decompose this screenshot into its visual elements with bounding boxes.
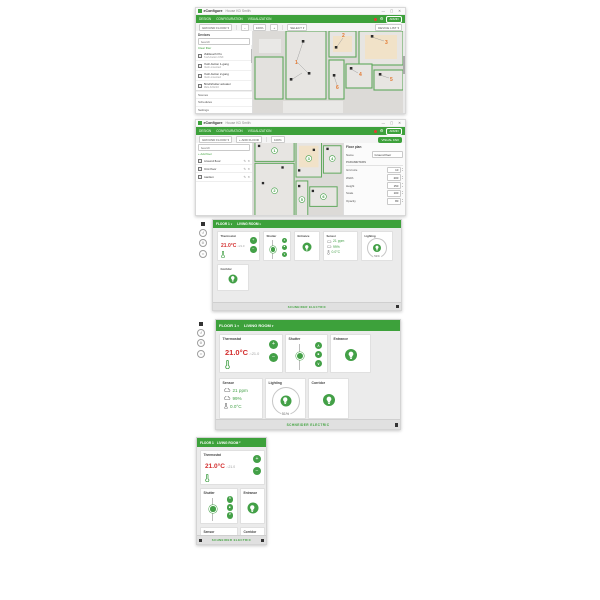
chevron-down-icon: ▾ xyxy=(272,324,274,328)
editor-window-1: eConfigure House KD Smith — ▢ ✕ DESIGN C… xyxy=(195,7,406,114)
svg-text:6: 6 xyxy=(336,85,339,91)
floor-list-item[interactable]: First floor ✎ ✕ xyxy=(196,165,252,173)
shutter-slider[interactable] xyxy=(212,498,213,521)
shutter-widget: Shutter ∧ ■ ∨ xyxy=(285,334,328,373)
slider-knob[interactable] xyxy=(209,505,217,513)
property-label: Scale xyxy=(346,191,387,195)
editor-window-2: eConfigure House KD Smith — ▢ ✕ DESIGN C… xyxy=(195,119,406,216)
temp-down-button[interactable]: − xyxy=(250,246,257,253)
step-down-icon: ▾ xyxy=(402,193,403,195)
settings-gear-icon[interactable]: ⚙ xyxy=(199,239,207,247)
resize-handle-icon[interactable] xyxy=(261,539,264,542)
shutter-stop-button[interactable]: ■ xyxy=(227,504,234,511)
floor-search[interactable] xyxy=(198,144,250,151)
slider-knob[interactable] xyxy=(270,246,277,253)
temp-down-button[interactable]: − xyxy=(269,353,278,362)
notification-dot-icon xyxy=(374,130,377,133)
co2-reading: 21 ppm xyxy=(224,388,248,393)
link-icon[interactable]: ∞ xyxy=(199,250,207,258)
lightbulb-icon xyxy=(326,396,332,405)
sensor-widget: Sensor 21 ppm 99% 0.0°C xyxy=(219,378,263,419)
add-floor-button[interactable]: + ADD FLOOR xyxy=(236,136,262,143)
chevron-down-icon: ▾ xyxy=(231,223,232,226)
mode-select[interactable]: SELECT▾ xyxy=(287,24,307,31)
zoom-level[interactable]: 100% xyxy=(253,24,267,31)
lightbulb-icon xyxy=(283,397,289,405)
step-down-icon: ▾ xyxy=(402,201,403,203)
name-value-field[interactable]: Ground floor xyxy=(372,151,403,158)
account-button[interactable]: ADMIN xyxy=(386,16,402,23)
tab-room[interactable]: LIVING ROOM▾ xyxy=(237,222,261,226)
shutter-slider[interactable] xyxy=(272,240,273,259)
thermometer-icon xyxy=(225,360,230,369)
shutter-up-button[interactable]: ∧ xyxy=(227,496,234,503)
page: eConfigure House KD Smith — ▢ ✕ DESIGN C… xyxy=(0,0,600,600)
app-logo-icon xyxy=(198,121,202,125)
entrance-light-button[interactable] xyxy=(345,349,357,361)
tab-floor[interactable]: FLOOR 1▾ xyxy=(216,222,232,226)
temp-up-button[interactable]: + xyxy=(253,455,261,463)
device-list-item[interactable]: Push-button 2-gang Flush-mounted xyxy=(196,71,252,81)
property-label: Opacity xyxy=(346,199,387,203)
svg-text:3: 3 xyxy=(385,40,388,46)
property-row: Opacity 80 ▴▾ xyxy=(346,198,403,205)
stepper-arrows[interactable]: ▴▾ xyxy=(402,191,403,195)
svg-text:2: 2 xyxy=(342,33,345,39)
device-list-sidebar: Devices Clear filter Multitouch Pro Push… xyxy=(196,31,253,113)
sidebar-footer-schedules[interactable]: Schedules xyxy=(196,98,252,105)
dashboard-footer: SCHNEIDER ELECTRIC xyxy=(216,419,400,429)
menu-configuration[interactable]: CONFIGURATION xyxy=(216,129,243,133)
lightbulb-icon xyxy=(250,504,256,512)
floor-list: Ground floor ✎ ✕ First floor ✎ ✕ xyxy=(196,157,252,182)
slider-knob[interactable] xyxy=(296,352,304,360)
window-titlebar: eConfigure House KD Smith — ▢ ✕ xyxy=(196,8,405,15)
svg-text:5: 5 xyxy=(390,77,393,83)
settings-gear-icon[interactable]: ⚙ xyxy=(197,339,205,347)
entrance-widget: Entrance xyxy=(294,231,320,261)
property-label: Height xyxy=(346,184,387,188)
menu-design[interactable]: DESIGN xyxy=(199,17,211,21)
maximize-icon: ▢ xyxy=(390,121,395,125)
device-subtitle: REG-K/4x/10 xyxy=(204,86,231,89)
tab-floor[interactable]: FLOOR 1▾ xyxy=(219,323,239,328)
window-titlebar: eConfigure House KD Smith — ▢ ✕ xyxy=(196,120,405,127)
notification-dot-icon xyxy=(374,18,377,21)
floorplan-2: 1 2 3 4 5 6 xyxy=(253,143,343,215)
app-name: eConfigure xyxy=(204,9,223,13)
delete-icon[interactable]: ✕ xyxy=(247,167,250,171)
co2-cloud-icon xyxy=(327,240,332,243)
maximize-icon: ▢ xyxy=(390,9,395,13)
main-menu-bar: DESIGN CONFIGURATION VISUALIZATION ⚙ ADM… xyxy=(196,127,405,135)
stepper-arrows[interactable]: ▴▾ xyxy=(402,168,403,172)
tab-floor[interactable]: FLOOR 1 xyxy=(200,441,214,445)
lighting-percent: 51% xyxy=(373,254,381,258)
chevron-down-icon: ▾ xyxy=(237,324,239,328)
lightbulb-icon xyxy=(305,244,310,251)
thermostat-widget: Thermostat 21.0°C ⌂21.0 + − xyxy=(200,450,265,485)
lightbulb-icon xyxy=(348,351,354,360)
setpoint-value: ⌂21.0 xyxy=(250,352,260,356)
main-menu-bar: DESIGN CONFIGURATION VISUALIZATION ⚙ ADM… xyxy=(196,15,405,23)
shutter-down-button[interactable]: ∨ xyxy=(227,512,234,519)
canvas-scrollbar[interactable] xyxy=(403,31,405,113)
lighting-dial[interactable]: 51% xyxy=(272,387,300,415)
chevron-down-icon: ▾ xyxy=(260,223,261,226)
co2-reading: 21 ppm xyxy=(327,239,344,243)
property-label: Width xyxy=(346,176,387,180)
floor-list-item[interactable]: Garden ✎ ✕ xyxy=(196,173,252,181)
viewer-toolbar-4: ↺ ⚙ ∞ xyxy=(197,322,205,358)
minimize-icon: — xyxy=(382,121,387,125)
lighting-dial[interactable]: 51% xyxy=(367,238,387,258)
lighting-button[interactable] xyxy=(280,395,291,406)
floor-select[interactable]: GROUND FLOOR▾ xyxy=(199,24,232,31)
thermostat-widget: Thermostat 21.0°C ⌂21.0 + − xyxy=(219,334,283,373)
dashboard-footer: SCHNEIDER ELECTRIC xyxy=(213,302,401,310)
menu-design[interactable]: DESIGN xyxy=(199,129,211,133)
properties-panel: Floor plan Name Ground floor Parameters … xyxy=(343,143,405,215)
device-search[interactable] xyxy=(198,38,250,45)
dashboard-footer: SCHNEIDER ELECTRIC xyxy=(197,535,266,544)
property-value-field[interactable]: 200 xyxy=(387,174,401,181)
device-list-toggle[interactable]: DEVICE LIST▾ xyxy=(375,24,402,31)
undo-icon[interactable]: ↺ xyxy=(199,229,207,237)
corridor-light-button[interactable] xyxy=(229,275,238,284)
sidebar-footer: Scenes Schedules Settings xyxy=(196,90,252,113)
chevron-down-icon: ▾ xyxy=(397,26,399,30)
humidity-reading: 99% xyxy=(327,245,344,249)
property-row: Width 200 ▴▾ xyxy=(346,174,403,181)
tab-room[interactable]: LIVING ROOM▾ xyxy=(217,441,241,445)
close-icon: ✕ xyxy=(398,121,403,125)
edit-icon[interactable]: ✎ xyxy=(243,175,246,179)
zoom-level[interactable]: 100% xyxy=(271,136,285,143)
link-icon[interactable]: ∞ xyxy=(197,350,205,358)
device-list-item[interactable]: Multitouch Pro Push-button KNX xyxy=(196,51,252,61)
temperature-value: 21.0°C xyxy=(225,348,248,357)
stepper-arrows[interactable]: ▴▾ xyxy=(402,176,403,180)
menu-visualization[interactable]: VISUALIZATION xyxy=(248,129,272,133)
thermometer-icon xyxy=(224,403,228,409)
floor-icon xyxy=(198,175,202,179)
property-row: Height 150 ▴▾ xyxy=(346,182,403,189)
step-down-icon: ▾ xyxy=(402,178,403,180)
shutter-up-button[interactable]: ∧ xyxy=(315,342,322,349)
dashboard-large: FLOOR 1▾ LIVING ROOM▾ Thermostat 21.0°C … xyxy=(215,319,401,430)
temperature-reading: 0.0°C xyxy=(327,250,344,255)
dashboard-header: FLOOR 1▾ LIVING ROOM▾ xyxy=(213,220,401,228)
resize-handle-icon[interactable] xyxy=(396,305,399,308)
corridor-light-button[interactable] xyxy=(323,394,335,406)
visual-knx-button[interactable]: VISUAL KNX xyxy=(378,137,402,143)
device-subtitle: Flush-mounted xyxy=(204,76,229,79)
floor-icon xyxy=(198,167,202,171)
step-down-icon: ▾ xyxy=(402,170,403,172)
delete-icon[interactable]: ✕ xyxy=(247,175,250,179)
device-icon xyxy=(198,84,202,88)
document-name: House KD Smith xyxy=(225,121,250,125)
entrance-light-button[interactable] xyxy=(247,503,258,514)
menu-square-icon[interactable] xyxy=(199,539,202,542)
menu-configuration[interactable]: CONFIGURATION xyxy=(216,17,243,21)
device-icon xyxy=(198,74,202,78)
floor-name: Ground floor xyxy=(204,159,242,163)
floorplan-1: 1 2 3 4 5 6 xyxy=(253,31,405,113)
sidebar-footer-scenes[interactable]: Scenes xyxy=(196,91,252,98)
floor-name: First floor xyxy=(204,167,242,171)
shutter-stop-button[interactable]: ■ xyxy=(315,351,322,358)
property-value-field[interactable]: 150 xyxy=(387,182,401,189)
shutter-slider[interactable] xyxy=(299,344,300,370)
property-rows: Grid size 10 ▴▾ Width 200 ▴▾ Height xyxy=(346,167,403,205)
chevron-down-icon: ▾ xyxy=(228,138,230,142)
device-search-input[interactable] xyxy=(199,40,249,44)
edit-icon[interactable]: ✎ xyxy=(243,167,246,171)
parameters-section-label: Parameters xyxy=(346,160,403,166)
humidity-cloud-icon xyxy=(327,245,332,248)
window-controls[interactable]: — ▢ ✕ xyxy=(382,121,403,125)
floorplan-canvas-2[interactable]: 1 2 3 4 5 6 xyxy=(253,143,343,215)
lighting-widget: Lighting 51% xyxy=(265,378,306,419)
lightbulb-icon xyxy=(375,245,379,251)
entrance-widget: Entrance xyxy=(330,334,371,373)
app-name: eConfigure xyxy=(204,121,223,125)
temp-up-button[interactable]: + xyxy=(250,237,257,244)
floor-list-item[interactable]: Ground floor ✎ ✕ xyxy=(196,157,252,165)
document-name: House KD Smith xyxy=(225,9,250,13)
floor-select[interactable]: GROUND FLOOR▾ xyxy=(199,136,232,143)
thermometer-icon xyxy=(205,474,210,482)
corridor-widget: Corridor xyxy=(217,264,249,291)
shutter-widget: Shutter ∧ ■ ∨ xyxy=(200,488,238,524)
property-value-field[interactable]: 100 xyxy=(387,190,401,197)
thermometer-icon xyxy=(327,250,330,255)
temperature-value: 21.0°C xyxy=(221,243,236,249)
account-button[interactable]: ADMIN xyxy=(386,128,402,135)
lightbulb-icon xyxy=(231,276,236,283)
settings-gear-icon[interactable]: ⚙ xyxy=(380,17,384,21)
shutter-widget: Shutter ∧ ■ ∨ xyxy=(263,231,291,261)
delete-icon[interactable]: ✕ xyxy=(247,159,250,163)
stepper-arrows[interactable]: ▴▾ xyxy=(402,199,403,203)
app-square-icon xyxy=(201,222,205,226)
entrance-light-button[interactable] xyxy=(303,243,312,252)
settings-gear-icon[interactable]: ⚙ xyxy=(380,129,384,133)
menu-visualization[interactable]: VISUALIZATION xyxy=(248,17,272,21)
corridor-widget: Corridor xyxy=(308,378,349,419)
property-label: Grid size xyxy=(346,168,387,172)
shutter-stop-button[interactable]: ■ xyxy=(282,245,287,250)
device-list-title: Devices xyxy=(196,31,252,37)
co2-cloud-icon xyxy=(224,388,231,392)
device-subtitle: Push-button KNX xyxy=(204,56,224,59)
temperature-reading: 0.0°C xyxy=(224,403,248,409)
thermometer-icon xyxy=(221,251,225,258)
dashboard-header: FLOOR 1 LIVING ROOM▾ xyxy=(197,438,266,447)
floorplan-canvas-1[interactable]: 1 2 3 4 5 6 xyxy=(253,31,405,113)
resize-handle-icon[interactable] xyxy=(395,423,399,427)
setpoint-value: ⌂21.0 xyxy=(226,465,235,469)
svg-text:1: 1 xyxy=(295,60,298,66)
temp-down-button[interactable]: − xyxy=(253,467,261,475)
bed-area xyxy=(365,35,397,59)
window-controls[interactable]: — ▢ ✕ xyxy=(382,9,403,13)
lighting-widget: Lighting 51% xyxy=(361,231,393,261)
edit-icon[interactable]: ✎ xyxy=(243,159,246,163)
property-value-field[interactable]: 10 xyxy=(387,167,401,174)
entrance-widget: Entrance xyxy=(240,488,265,524)
shutter-down-button[interactable]: ∨ xyxy=(315,360,322,367)
floors-sidebar: + Add floor Ground floor ✎ ✕ First xyxy=(196,143,253,215)
dashboard-medium: FLOOR 1▾ LIVING ROOM▾ Thermostat 21.0°C … xyxy=(212,219,402,311)
name-label: Name xyxy=(346,153,372,157)
app-logo-icon xyxy=(198,9,202,13)
chevron-down-icon: ▾ xyxy=(239,441,240,444)
chevron-down-icon: ▾ xyxy=(303,26,305,30)
step-down-icon: ▾ xyxy=(402,186,403,188)
zoom-in-button[interactable]: + xyxy=(270,24,278,31)
close-icon: ✕ xyxy=(398,9,403,13)
undo-icon[interactable]: ↺ xyxy=(197,329,205,337)
viewer-toolbar-3: ↺ ⚙ ∞ xyxy=(199,222,207,258)
floor-search-input[interactable] xyxy=(199,146,249,150)
temp-up-button[interactable]: + xyxy=(269,340,278,349)
tab-room[interactable]: LIVING ROOM▾ xyxy=(244,323,274,328)
properties-title: Floor plan xyxy=(346,144,403,150)
floor-name: Garden xyxy=(204,175,242,179)
dashboard-mobile: FLOOR 1 LIVING ROOM▾ Thermostat 21.0°C ⌂… xyxy=(196,437,267,545)
device-icon xyxy=(198,64,202,68)
sidebar-footer-settings[interactable]: Settings xyxy=(196,106,252,113)
sensor-widget: Sensor 21 ppm 99% 0.0°C xyxy=(323,231,358,261)
property-row: Grid size 10 ▴▾ xyxy=(346,167,403,174)
stepper-arrows[interactable]: ▴▾ xyxy=(402,183,403,187)
floor-icon xyxy=(198,159,202,163)
humidity-cloud-icon xyxy=(224,396,231,400)
svg-text:4: 4 xyxy=(359,72,362,78)
thermostat-widget: Thermostat 21.0°C ⌂21.0 + − xyxy=(217,231,260,261)
app-square-icon xyxy=(199,322,203,326)
minimize-icon: — xyxy=(382,9,387,13)
device-subtitle: Flush-mounted xyxy=(204,66,229,69)
lighting-percent: 51% xyxy=(281,412,290,416)
zoom-out-button[interactable]: − xyxy=(241,24,249,31)
setpoint-value: ⌂21.0 xyxy=(237,244,244,248)
temperature-value: 21.0°C xyxy=(205,463,225,470)
dashboard-header: FLOOR 1▾ LIVING ROOM▾ xyxy=(216,320,400,331)
device-icon xyxy=(198,54,202,58)
shutter-down-button[interactable]: ∨ xyxy=(282,252,287,257)
property-row: Scale 100 ▴▾ xyxy=(346,190,403,197)
device-list-item[interactable]: Push-button 1-gang Flush-mounted xyxy=(196,61,252,71)
property-value-field[interactable]: 80 xyxy=(387,198,401,205)
lighting-button[interactable] xyxy=(373,244,381,252)
chevron-down-icon: ▾ xyxy=(228,26,230,30)
shutter-up-button[interactable]: ∧ xyxy=(282,238,287,243)
humidity-reading: 99% xyxy=(224,396,248,401)
